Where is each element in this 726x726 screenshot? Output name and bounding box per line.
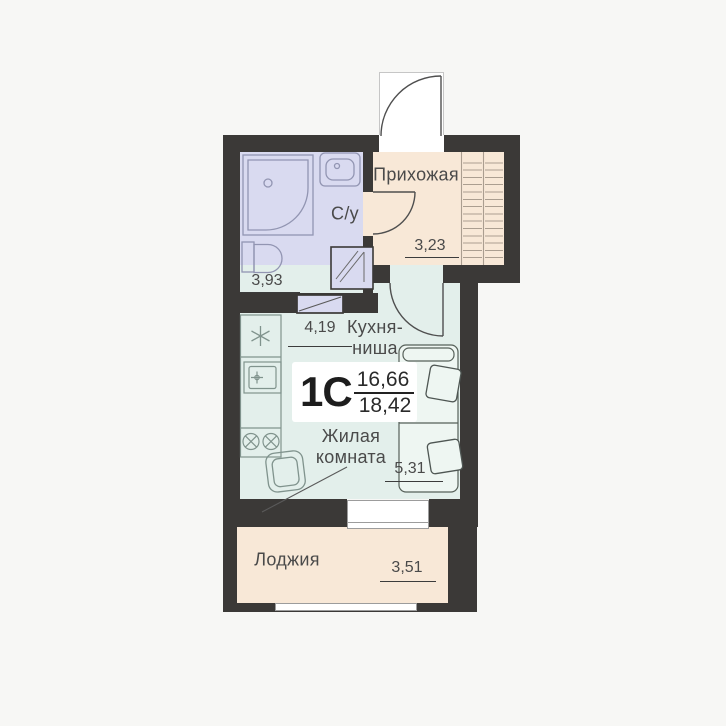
wall-segment	[460, 283, 478, 527]
bathroom-door-gap	[363, 192, 373, 236]
room-label-kitchen: Кухня-ниша	[335, 317, 415, 359]
dim-line-bathroom	[240, 292, 300, 294]
room-area-loggia: 3,51	[391, 559, 422, 577]
wall-segment	[363, 152, 373, 192]
dim-line-living	[385, 481, 443, 483]
wall-segment	[448, 527, 477, 612]
room-label-living: Жилая комната	[296, 426, 406, 468]
dim-line-kitchen	[288, 346, 352, 348]
room-label-hallway: Прихожая	[373, 165, 459, 186]
entrance-door-gap	[379, 135, 444, 152]
wardrobe-hatch	[485, 156, 503, 264]
room-label-bathroom: С/у	[331, 204, 359, 225]
unit-area-lower: 18,42	[359, 394, 412, 418]
room-area-living: 5,31	[394, 460, 425, 478]
floor-plan-canvas: Прихожая 3,23 С/у 3,93 Кухня-ниша 4,19 Ж…	[0, 0, 726, 726]
wardrobe-hatch	[463, 156, 482, 264]
room-area-kitchen: 4,19	[304, 319, 335, 337]
wall-segment	[504, 135, 520, 283]
wall-segment	[240, 499, 347, 527]
window	[347, 500, 429, 523]
wall-segment	[443, 265, 520, 283]
window-sill	[347, 522, 429, 529]
unit-type-label: 1С	[300, 368, 352, 416]
wall-segment	[223, 135, 379, 152]
entrance-recess	[379, 72, 444, 136]
loggia-glazing	[275, 603, 417, 611]
wall-segment	[223, 135, 240, 527]
wall-segment	[373, 265, 390, 283]
dim-line-hallway	[405, 257, 459, 259]
room-area-hallway: 3,23	[414, 237, 445, 255]
room-label-loggia: Лоджия	[254, 550, 320, 571]
wall-segment	[240, 293, 378, 313]
room-area-bathroom: 3,93	[251, 272, 282, 290]
unit-info-box: 1С 16,66 18,42	[292, 362, 417, 422]
dim-line-loggia	[380, 581, 436, 583]
unit-area-upper: 16,66	[357, 368, 410, 392]
wall-segment	[429, 499, 478, 527]
wall-segment	[223, 527, 237, 612]
